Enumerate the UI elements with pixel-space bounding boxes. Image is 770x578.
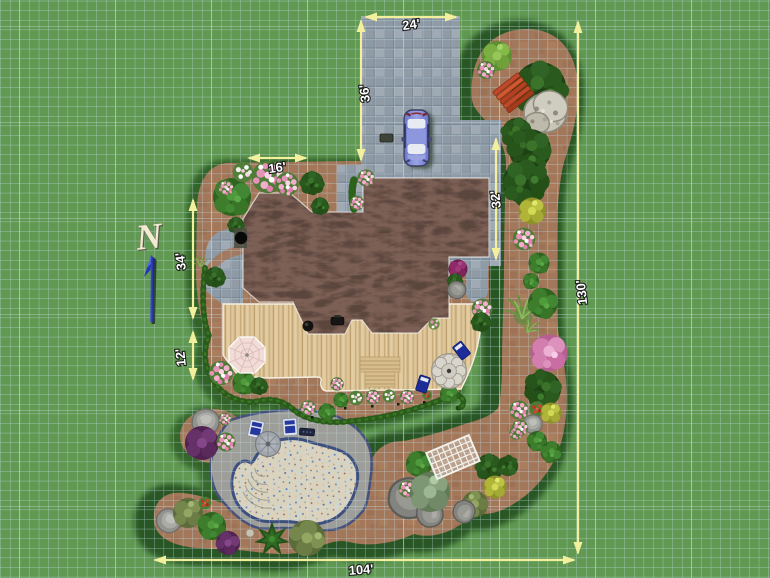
svg-text:104': 104' [348,561,374,578]
svg-text:34': 34' [172,252,189,271]
svg-text:36': 36' [356,84,373,103]
svg-text:16': 16' [267,159,286,176]
svg-text:32': 32' [487,190,504,209]
svg-text:130': 130' [573,279,591,305]
svg-text:24': 24' [401,16,420,33]
svg-text:12': 12' [172,348,189,367]
